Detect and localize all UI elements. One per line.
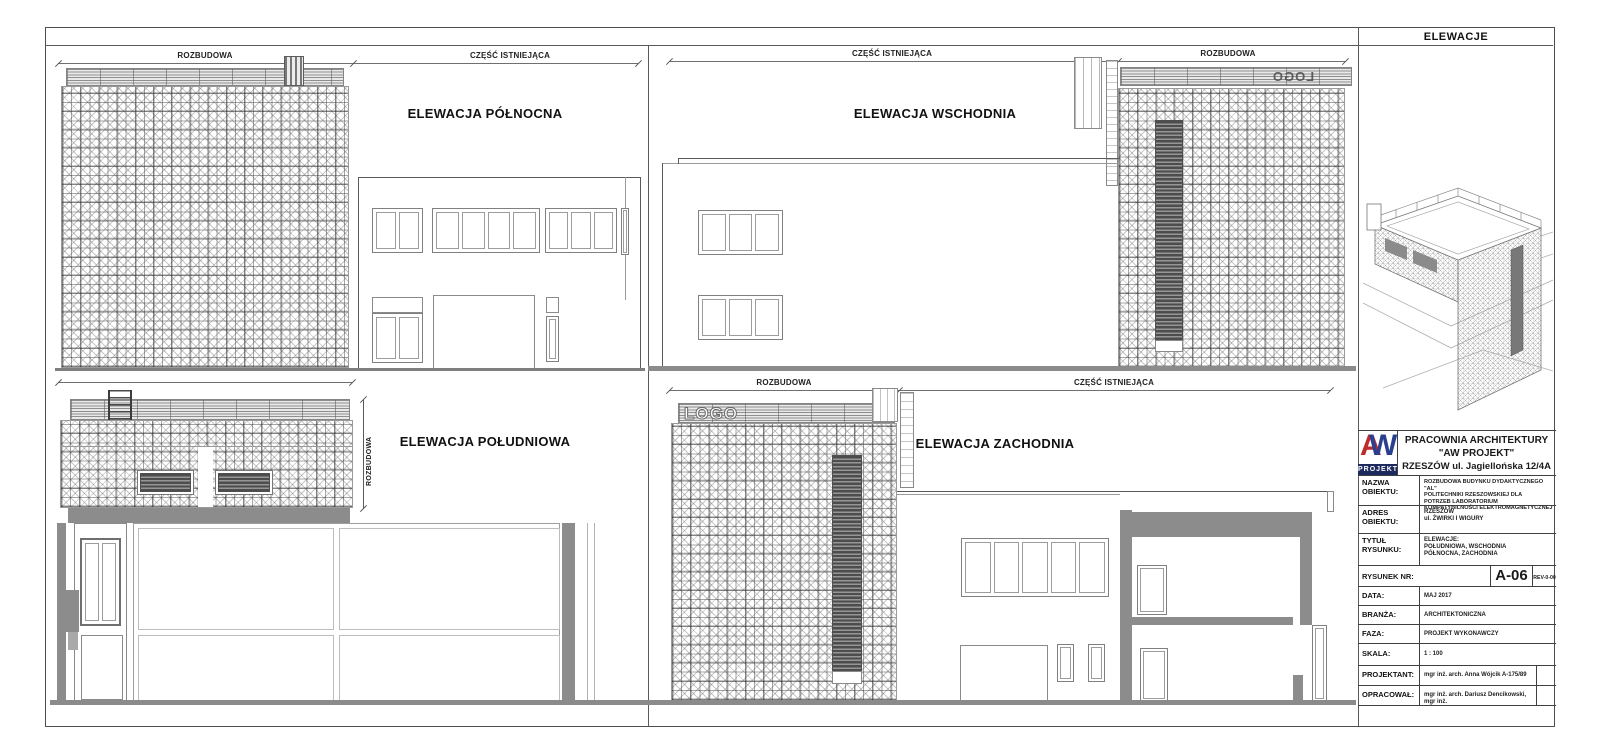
projektant-sign-cell <box>1536 666 1556 685</box>
north-dim-left-label: ROZBUDOWA <box>177 51 232 60</box>
south-door-leaf <box>80 538 121 626</box>
west-cut-slab-upper <box>1132 512 1312 537</box>
glazing-panel <box>138 635 334 703</box>
window-pane <box>1315 628 1324 699</box>
projektant-value-text: mgr inż. arch. Anna Wójcik A-175/89 <box>1424 672 1527 678</box>
adres-value: RZESZÓW ul. ŻWIRKI I WIGURY <box>1424 506 1554 523</box>
west-louver-strip <box>832 455 862 671</box>
south-cut-bracket-small <box>68 632 78 650</box>
vent-louvers <box>140 473 191 492</box>
titleblock-adres-row: ADRES OBIEKTU: RZESZÓW ul. ŻWIRKI I WIGU… <box>1358 505 1556 533</box>
west-entry-panel <box>960 645 1048 702</box>
north-dimension-line <box>58 63 638 64</box>
titleblock-empty-row <box>1358 705 1556 727</box>
window-pane <box>1022 542 1048 593</box>
south-dimension-line <box>58 382 352 383</box>
west-dimension-line <box>669 390 1330 391</box>
door-panel <box>102 543 116 621</box>
west-cut-wall <box>1120 510 1132 702</box>
south-glazed-wall <box>133 523 560 703</box>
perspective-ladder-tower <box>1367 204 1381 230</box>
east-ground-line <box>648 366 1356 371</box>
window-pane <box>549 212 568 249</box>
company-name-block: PRACOWNIA ARCHITEKTURY "AW PROJEKT" RZES… <box>1398 434 1555 473</box>
west-section-right-panel <box>1312 625 1327 702</box>
north-transom-window <box>372 313 423 363</box>
branza-label: BRANŻA: <box>1358 606 1420 624</box>
window-pane <box>1051 542 1077 593</box>
projektant-value: mgr inż. arch. Anna Wójcik A-175/89 <box>1424 666 1534 679</box>
north-existing-left-edge <box>358 177 359 368</box>
window-pane <box>399 212 419 249</box>
window-pane <box>549 319 556 359</box>
faza-value-text: PROJEKT WYKONAWCZY <box>1424 631 1499 637</box>
skala-value-text: 1 : 100 <box>1424 651 1443 657</box>
faza-value: PROJEKT WYKONAWCZY <box>1424 625 1554 638</box>
skala-label-text: SKALA: <box>1362 649 1390 658</box>
branza-label-text: BRANŻA: <box>1362 610 1396 619</box>
titleblock-branza-row: BRANŻA: ARCHITEKTONICZNA <box>1358 605 1556 624</box>
east-logo-sign-mirrored: LOGO <box>1258 69 1328 84</box>
north-window-upper-3 <box>545 208 617 253</box>
nazwa-value-line: POLITECHNIKI RZESZOWSKIEJ DLA <box>1424 492 1554 499</box>
vent-louvers <box>218 473 270 492</box>
window-pane <box>1091 647 1102 679</box>
west-logo-sign: LOGO <box>684 404 738 424</box>
west-dim-left-label: ROZBUDOWA <box>756 378 811 387</box>
door-panel <box>1143 651 1165 699</box>
skala-label: SKALA: <box>1358 644 1420 665</box>
east-window-upper <box>698 210 783 255</box>
quadrant-divider <box>648 45 649 726</box>
titleblock-faza-row: FAZA: PROJEKT WYKONAWCZY <box>1358 624 1556 643</box>
revision-number: REV-0-00 <box>1533 575 1556 581</box>
south-cut-slab <box>68 508 350 523</box>
projektant-label: PROJEKTANT: <box>1358 666 1420 685</box>
west-narrow-window-2 <box>1088 644 1105 682</box>
nazwa-label-line2: OBIEKTU: <box>1362 487 1398 496</box>
window-pane <box>965 542 991 593</box>
sheet-title: ELEWACJE <box>1358 31 1554 43</box>
north-window-upper-1 <box>372 208 423 253</box>
south-vent-left <box>137 470 194 495</box>
adres-label-line2: OBIEKTU: <box>1362 517 1398 526</box>
south-break-line <box>594 523 595 702</box>
data-value: MAJ 2017 <box>1424 587 1554 600</box>
window-pane <box>1079 542 1105 593</box>
logo-caption: PROJEKT <box>1358 464 1397 475</box>
east-dimension-line <box>669 61 1345 62</box>
west-louver-strip-base <box>832 671 862 684</box>
window-pane <box>436 212 459 249</box>
west-parapet-right <box>1327 491 1334 512</box>
window-pane <box>755 214 779 251</box>
opracowal-label-text: OPRACOWAŁ: <box>1362 690 1414 699</box>
window-pane <box>702 214 726 251</box>
tytul-label: TYTUŁ RYSUNKU: <box>1358 534 1420 565</box>
north-extension-absorber-wall <box>61 86 349 368</box>
north-dim-right-label: CZĘŚĆ ISTNIEJĄCA <box>470 51 550 60</box>
window-pane <box>755 299 779 336</box>
window-pane <box>513 212 536 249</box>
west-roof-hoist-box <box>872 388 898 422</box>
east-existing-roof-step <box>678 158 679 164</box>
company-logo: A W PROJEKT <box>1358 431 1398 475</box>
tytul-value: ELEWACJE: POŁUDNIOWA, WSCHODNIA PÓŁNOCNA… <box>1424 534 1554 558</box>
skala-value: 1 : 100 <box>1424 644 1554 658</box>
west-dim-right-label: CZĘŚĆ ISTNIEJĄCA <box>1074 378 1154 387</box>
east-roof-ladder-box <box>1074 57 1102 129</box>
branza-value: ARCHITEKTONICZNA <box>1424 606 1554 619</box>
company-line-2: "AW PROJEKT" <box>1398 447 1555 460</box>
adres-value-line: ul. ŻWIRKI I WIGURY <box>1424 516 1554 523</box>
drawing-number: A-06 <box>1495 567 1528 584</box>
titleblock-projektant-row: PROJEKTANT: mgr inż. arch. Anna Wójcik A… <box>1358 665 1556 685</box>
west-cut-block <box>1293 675 1303 702</box>
north-chimney <box>284 56 304 86</box>
west-narrow-window-1 <box>1057 644 1074 682</box>
faza-label: FAZA: <box>1358 625 1420 643</box>
north-elevation-title: ELEWACJA PÓŁNOCNA <box>408 106 563 121</box>
window-pane <box>729 214 753 251</box>
perspective-view <box>1363 88 1553 423</box>
revision-cell: REV-0-00 <box>1533 566 1556 586</box>
south-cut-bracket <box>66 590 79 632</box>
south-cut-wall-left <box>57 523 66 702</box>
opracowal-value: mgr inż. arch. Dariusz Dencikowski, mgr … <box>1424 686 1534 706</box>
west-roof-hoist-rail <box>900 392 914 488</box>
east-dim-right-label: ROZBUDOWA <box>1200 49 1255 58</box>
east-existing-roofline-upper <box>678 158 1120 159</box>
west-cut-slab-lower <box>1132 617 1293 625</box>
south-door-lower-panel <box>81 635 123 700</box>
window-pane <box>376 317 396 359</box>
opracowal-label: OPRACOWAŁ: <box>1358 686 1420 705</box>
window-pane <box>571 212 590 249</box>
south-elevation-title: ELEWACJA POŁUDNIOWA <box>400 434 571 449</box>
window-pane <box>994 542 1020 593</box>
north-narrow-window-tall <box>546 316 559 362</box>
north-transom-window-top <box>372 297 423 313</box>
window-pane <box>1060 647 1071 679</box>
south-break-line <box>587 523 588 702</box>
east-extension-absorber-wall <box>1118 88 1345 368</box>
titleblock-rysunek-row: RYSUNEK NR: A-06 REV-0-00 <box>1358 565 1556 586</box>
door-panel <box>1140 568 1164 612</box>
logo-letter-w: W <box>1369 429 1397 463</box>
opracowal-value-text: mgr inż. arch. Dariusz Dencikowski, mgr … <box>1424 692 1526 705</box>
window-pane <box>399 317 419 359</box>
nazwa-label: NAZWA OBIEKTU: <box>1358 476 1420 505</box>
branza-value-text: ARCHITEKTONICZNA <box>1424 612 1486 618</box>
company-line-1: PRACOWNIA ARCHITEKTURY <box>1398 434 1555 447</box>
adres-label: ADRES OBIEKTU: <box>1358 506 1420 533</box>
titleblock-data-row: DATA: MAJ 2017 <box>1358 586 1556 605</box>
tytul-value-line: PÓŁNOCNA, ZACHODNIA <box>1424 551 1554 558</box>
tytul-value-line: ELEWACJE: <box>1424 537 1554 544</box>
north-window-upper-2 <box>432 208 540 253</box>
west-section-door-upper <box>1137 565 1167 615</box>
north-existing-roofline <box>358 177 640 178</box>
window-pane <box>594 212 613 249</box>
north-narrow-window-small <box>546 297 559 313</box>
door-panel <box>85 543 99 621</box>
company-line-3: RZESZÓW ul. Jagiellońska 12/4A <box>1398 460 1555 473</box>
window-pane <box>376 212 396 249</box>
adres-value-line: RZESZÓW <box>1424 509 1554 516</box>
glazing-panel <box>138 528 334 630</box>
east-louver-strip-base <box>1155 340 1183 352</box>
north-ground-line <box>55 368 645 371</box>
north-window-narrow-right <box>621 208 629 255</box>
rysunek-label: RYSUNEK NR: <box>1362 572 1414 581</box>
glazing-panel <box>339 635 560 703</box>
east-louver-strip <box>1155 120 1183 340</box>
west-existing-roofline <box>897 491 1333 492</box>
west-existing-roofline-inner <box>897 494 1120 495</box>
titleblock-skala-row: SKALA: 1 : 100 <box>1358 643 1556 665</box>
south-vent-right <box>215 470 273 495</box>
south-hatch-gap <box>198 447 213 507</box>
titleblock-opracowal-row: OPRACOWAŁ: mgr inż. arch. Dariusz Dencik… <box>1358 685 1556 705</box>
drawing-number-cell: A-06 <box>1490 566 1533 586</box>
south-cut-wall-right <box>562 523 575 702</box>
east-roof-ladder-rail <box>1106 60 1118 186</box>
east-window-lower <box>698 295 783 340</box>
titleblock-company-row: A W PROJEKT PRACOWNIA ARCHITEKTURY "AW P… <box>1358 430 1556 475</box>
window-pane <box>729 299 753 336</box>
data-value-text: MAJ 2017 <box>1424 593 1452 599</box>
south-west-ground-line <box>50 700 1356 705</box>
data-label: DATA: <box>1358 587 1420 605</box>
projektant-label-text: PROJEKTANT: <box>1362 670 1414 679</box>
top-strip-line <box>46 45 1553 46</box>
titleblock-nazwa-row: NAZWA OBIEKTU: ROZBUDOWA BUDYNKU DYDAKTY… <box>1358 475 1556 505</box>
tytul-value-line: POŁUDNIOWA, WSCHODNIA <box>1424 544 1554 551</box>
window-pane <box>702 299 726 336</box>
nazwa-value-line: ROZBUDOWA BUDYNKU DYDAKTYCZNEGO "AL" <box>1424 479 1554 492</box>
drawing-sheet: ELEWACJE ROZBUDOWA CZĘŚĆ ISTNIEJĄCA ELEW… <box>0 0 1600 754</box>
titleblock-tytul-row: TYTUŁ RYSUNKU: ELEWACJE: POŁUDNIOWA, WSC… <box>1358 533 1556 565</box>
data-label-text: DATA: <box>1362 591 1384 600</box>
south-vertical-dim-label: ROZBUDOWA <box>366 424 373 486</box>
west-cut-pier <box>1300 512 1312 625</box>
north-existing-right-edge <box>640 177 641 368</box>
east-existing-left-edge <box>662 163 663 367</box>
west-window-band <box>961 538 1109 597</box>
south-vertical-dim-line <box>363 399 364 508</box>
west-section-door-lower <box>1140 648 1168 702</box>
faza-label-text: FAZA: <box>1362 629 1384 638</box>
glazing-panel <box>339 528 560 630</box>
window-pane <box>488 212 511 249</box>
west-elevation-title: ELEWACJA ZACHODNIA <box>916 436 1075 451</box>
tytul-label-line2: RYSUNKU: <box>1362 545 1401 554</box>
east-dim-left-label: CZĘŚĆ ISTNIEJĄCA <box>852 49 932 58</box>
west-extension-absorber-wall <box>671 423 897 701</box>
perspective-louver-strip <box>1511 245 1523 356</box>
window-pane <box>462 212 485 249</box>
east-existing-roofline-lower <box>662 163 1120 164</box>
opracowal-sign-cell <box>1536 686 1556 705</box>
north-entry-recess <box>433 295 535 368</box>
east-elevation-title: ELEWACJA WSCHODNIA <box>854 106 1016 121</box>
window-pane <box>623 210 627 253</box>
